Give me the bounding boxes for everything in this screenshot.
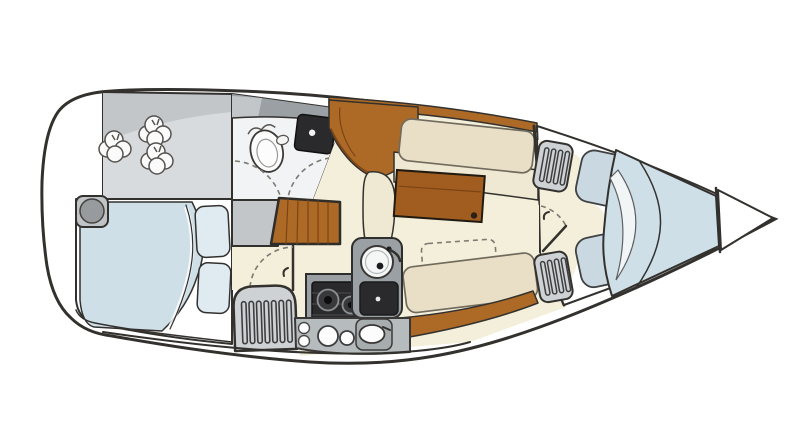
v-berth: V-berth with folded blanket (603, 150, 719, 296)
galley-counter: Hull-side galley counter with burners an… (295, 318, 410, 354)
aft-hatch: Aft cabin hatch (76, 196, 108, 227)
hanging-locker: Louvered lockers in forward cabin (532, 140, 574, 193)
saloon-table: Saloon dining table (394, 170, 485, 222)
boat-floorplan: Sailboat interior layout floor plan Ster… (0, 0, 800, 446)
icebox: Icebox / second sink (360, 282, 398, 315)
pillow (197, 262, 232, 314)
stove-knob (299, 323, 310, 334)
counter-burner (340, 331, 354, 345)
pillow: Two pillows (195, 205, 231, 258)
room-forward-cabin: Forward V-berth cabin Louvered lockers i… (532, 126, 720, 305)
galley-sink-unit: Round galley sink with tap Icebox / seco… (352, 238, 402, 318)
stove-knob (299, 336, 310, 347)
counter-burner (318, 326, 338, 346)
engine-louver: Louvered engine-compartment front (233, 285, 297, 351)
room-forepeak: Anchor locker / forepeak (716, 188, 773, 252)
room-stern-locker: Stern storage locker with fenders Three … (99, 92, 232, 199)
hanging-locker (533, 250, 574, 303)
head-counter-end (232, 96, 262, 118)
companionway-steps: Companionway steps (271, 198, 340, 244)
room-aft-cabin: Aft double cabin Aft double berth with d… (76, 196, 232, 344)
